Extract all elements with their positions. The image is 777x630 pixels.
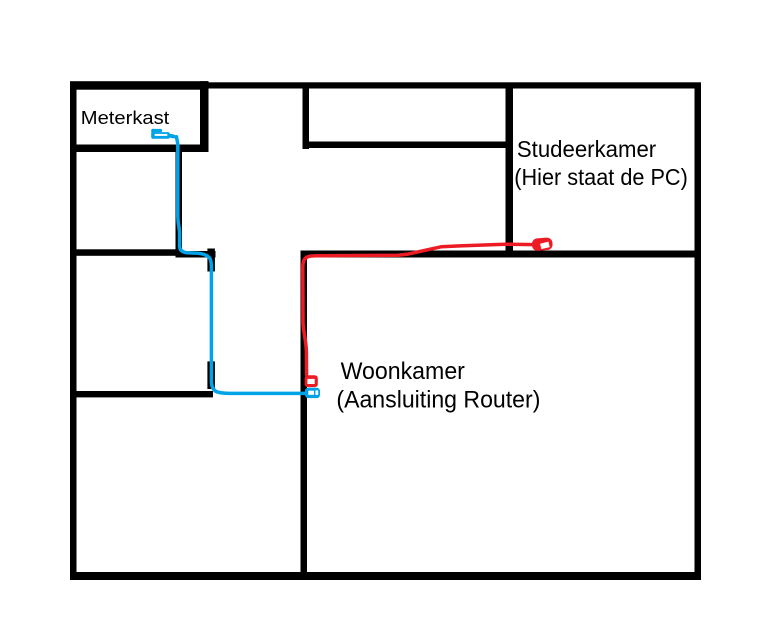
svg-text:Meterkast: Meterkast [81,107,170,128]
svg-text:(Hier staat de PC): (Hier staat de PC) [514,164,688,190]
svg-text:Woonkamer: Woonkamer [341,358,465,385]
svg-text:(Aansluiting Router): (Aansluiting Router) [336,386,540,413]
svg-text:Studeerkamer: Studeerkamer [517,136,657,162]
